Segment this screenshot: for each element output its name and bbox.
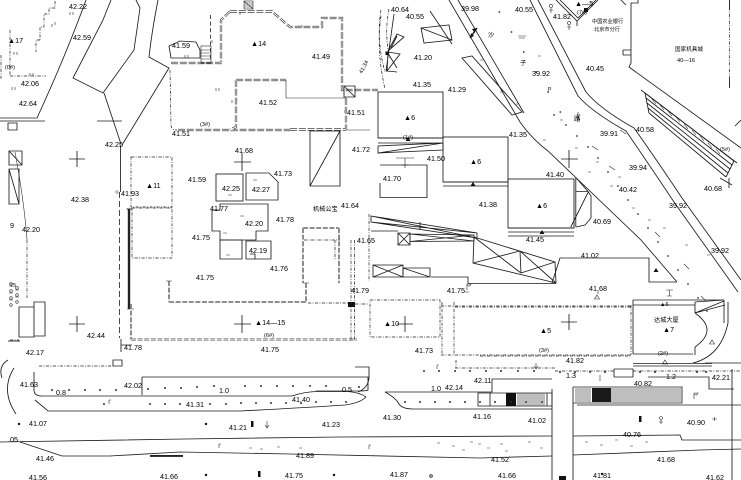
svg-text:42.14: 42.14 [445, 383, 463, 392]
svg-text:9: 9 [10, 221, 14, 230]
svg-text:41.38: 41.38 [479, 200, 497, 209]
svg-text:(0#): (0#) [5, 65, 15, 71]
svg-text:40.55: 40.55 [515, 5, 533, 14]
svg-text:▲14—15: ▲14—15 [255, 318, 285, 327]
svg-text:41.75: 41.75 [192, 233, 210, 242]
svg-text:41.64: 41.64 [341, 201, 359, 210]
svg-text:40.69: 40.69 [593, 217, 611, 226]
svg-text:41.87: 41.87 [390, 470, 408, 479]
svg-text:41.75: 41.75 [196, 273, 214, 282]
svg-text:41.63: 41.63 [20, 380, 38, 389]
svg-text:1.3: 1.3 [566, 371, 576, 380]
svg-text:39.94: 39.94 [629, 163, 647, 172]
svg-text:▲14: ▲14 [251, 39, 266, 48]
svg-text:(7#): (7#) [577, 10, 587, 16]
svg-text:40—16: 40—16 [677, 58, 695, 64]
svg-text:41.75: 41.75 [285, 471, 303, 480]
svg-text:1.0: 1.0 [431, 384, 441, 393]
svg-text:北京市分行: 北京市分行 [594, 25, 620, 33]
svg-text:41.75: 41.75 [261, 345, 279, 354]
svg-text:41.29: 41.29 [448, 85, 466, 94]
svg-text:42.02: 42.02 [124, 381, 142, 390]
svg-text:41.40: 41.40 [292, 395, 310, 404]
svg-text:42.20: 42.20 [22, 225, 40, 234]
svg-text:39.92: 39.92 [711, 246, 729, 255]
svg-text:40.76: 40.76 [623, 430, 641, 439]
svg-text:41.65: 41.65 [357, 236, 375, 245]
svg-text:41.23: 41.23 [322, 420, 340, 429]
svg-text:41.35: 41.35 [413, 80, 431, 89]
svg-text:42.19: 42.19 [249, 246, 267, 255]
svg-text:41.66: 41.66 [498, 471, 516, 480]
svg-text:(5#): (5#) [720, 147, 730, 153]
svg-text:40.55: 40.55 [406, 12, 424, 21]
svg-text:(6#): (6#) [264, 333, 274, 339]
svg-text:41.62: 41.62 [706, 473, 724, 480]
svg-text:39.92: 39.92 [669, 201, 687, 210]
svg-text:42.22: 42.22 [69, 2, 87, 11]
svg-text:▲—5: ▲—5 [575, 0, 593, 8]
svg-text:41.59: 41.59 [188, 175, 206, 184]
svg-text:41.02: 41.02 [528, 416, 546, 425]
svg-text:41.81: 41.81 [593, 471, 611, 480]
svg-text:41.45: 41.45 [526, 235, 544, 244]
svg-text:41.30: 41.30 [383, 413, 401, 422]
svg-text:39.92: 39.92 [532, 69, 550, 78]
svg-text:▲6: ▲6 [660, 302, 669, 308]
svg-text:沙: 沙 [488, 32, 494, 39]
svg-text:41.82: 41.82 [566, 356, 584, 365]
svg-text:42.20: 42.20 [245, 219, 263, 228]
svg-text:40.58: 40.58 [636, 125, 654, 134]
svg-text:(2#): (2#) [658, 351, 668, 357]
svg-text:42.44: 42.44 [87, 331, 105, 340]
svg-text:39.91: 39.91 [600, 129, 618, 138]
svg-text:.05: .05 [8, 435, 18, 444]
svg-text:39.98: 39.98 [461, 4, 479, 13]
svg-text:41.52: 41.52 [259, 98, 277, 107]
svg-text:41.78: 41.78 [124, 343, 142, 352]
svg-text:40.82: 40.82 [634, 379, 652, 388]
svg-text:1.2: 1.2 [666, 372, 676, 381]
svg-text:41.56: 41.56 [29, 473, 47, 480]
svg-text:41.73: 41.73 [274, 169, 292, 178]
svg-text:42.25: 42.25 [222, 184, 240, 193]
svg-text:41.20: 41.20 [414, 53, 432, 62]
svg-text:40.90: 40.90 [687, 418, 705, 427]
svg-text:子: 子 [520, 60, 526, 67]
svg-text:41.31: 41.31 [186, 400, 204, 409]
svg-text:机械公宝: 机械公宝 [313, 205, 338, 213]
svg-text:41.51: 41.51 [172, 129, 190, 138]
svg-text:▲6: ▲6 [404, 113, 415, 122]
svg-text:41.75: 41.75 [447, 286, 465, 295]
svg-text:42.59: 42.59 [73, 33, 91, 42]
svg-text:41.78: 41.78 [276, 215, 294, 224]
svg-text:(3#): (3#) [200, 122, 210, 128]
svg-text:▲10: ▲10 [384, 319, 399, 328]
svg-text:42.17: 42.17 [26, 348, 44, 357]
svg-text:41.16: 41.16 [473, 412, 491, 421]
svg-text:40.45: 40.45 [586, 64, 604, 73]
svg-text:41.59: 41.59 [172, 41, 190, 50]
svg-text:41.02: 41.02 [581, 251, 599, 260]
svg-text:41.77: 41.77 [210, 204, 228, 213]
svg-text:路: 路 [574, 115, 581, 123]
svg-text:▲17: ▲17 [8, 36, 23, 45]
svg-text:▲11: ▲11 [146, 181, 161, 190]
svg-text:40.42: 40.42 [619, 185, 637, 194]
svg-text:41.89: 41.89 [296, 451, 314, 460]
svg-text:41.68: 41.68 [235, 146, 253, 155]
svg-text:▲6: ▲6 [536, 201, 547, 210]
svg-text:40.68: 40.68 [704, 184, 722, 193]
svg-text:(3#): (3#) [539, 348, 549, 354]
svg-text:41.73: 41.73 [415, 346, 433, 355]
svg-text:41.68: 41.68 [657, 455, 675, 464]
svg-text:41.21: 41.21 [229, 423, 247, 432]
svg-text:41.51: 41.51 [347, 108, 365, 117]
svg-text:41.07: 41.07 [29, 419, 47, 428]
svg-text:42.25: 42.25 [105, 140, 123, 149]
svg-text:中国农业银行: 中国农业银行 [592, 17, 623, 25]
svg-text:41.49: 41.49 [312, 52, 330, 61]
svg-text:41.66: 41.66 [160, 472, 178, 480]
svg-text:41.76: 41.76 [270, 264, 288, 273]
svg-text:41.50: 41.50 [427, 154, 445, 163]
svg-text:41.70: 41.70 [383, 174, 401, 183]
svg-text:国家机具城: 国家机具城 [675, 45, 703, 53]
svg-text:42.38: 42.38 [71, 195, 89, 204]
svg-text:(1#): (1#) [403, 135, 413, 141]
svg-text:42.11: 42.11 [474, 376, 491, 385]
svg-text:41.82: 41.82 [553, 12, 571, 21]
svg-text:达城大厦: 达城大厦 [654, 316, 679, 324]
svg-text:41.46: 41.46 [36, 454, 54, 463]
svg-text:1.0: 1.0 [219, 386, 229, 395]
svg-text:42.21: 42.21 [712, 373, 730, 382]
svg-text:42.06: 42.06 [21, 79, 39, 88]
svg-text:▲7: ▲7 [663, 325, 674, 334]
svg-text:41.35: 41.35 [509, 130, 527, 139]
svg-text:41.52: 41.52 [491, 455, 509, 464]
svg-text:42.64: 42.64 [19, 99, 37, 108]
svg-text:▲5: ▲5 [540, 326, 551, 335]
svg-text:41.79: 41.79 [351, 286, 369, 295]
svg-text:▲6: ▲6 [470, 157, 481, 166]
svg-text:41.93: 41.93 [121, 189, 139, 198]
svg-text:41.72: 41.72 [352, 145, 370, 154]
svg-text:0.5: 0.5 [342, 385, 352, 394]
svg-text:41.68: 41.68 [589, 284, 607, 293]
svg-text:0.8: 0.8 [56, 388, 66, 397]
svg-text:p: p [548, 86, 551, 92]
svg-text:42.27: 42.27 [252, 185, 270, 194]
svg-text:41.40: 41.40 [546, 170, 564, 179]
